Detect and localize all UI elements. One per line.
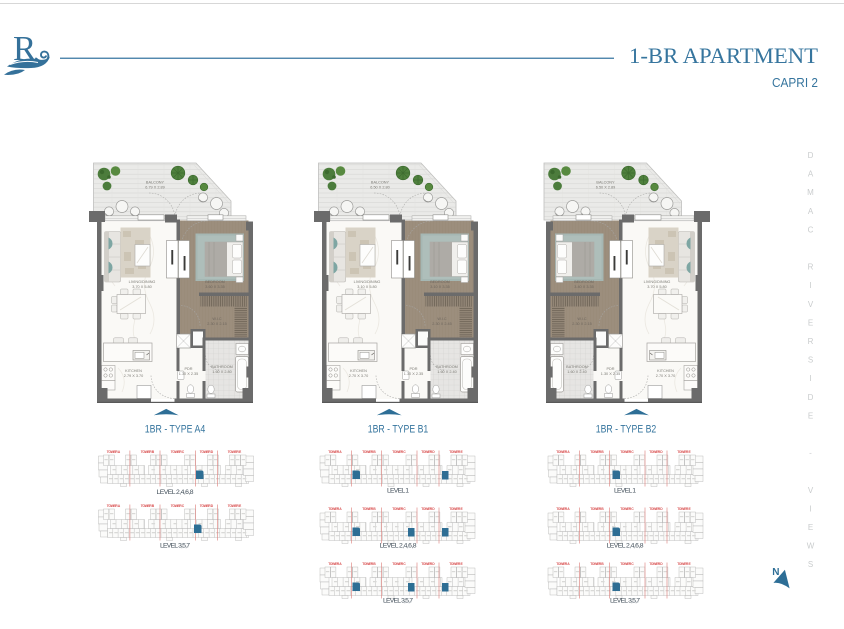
svg-text:W.I.C: W.I.C [577,317,587,321]
svg-text:6.50 X 2.80: 6.50 X 2.80 [370,186,389,190]
svg-text:PDR: PDR [606,367,614,371]
svg-text:PDR: PDR [409,367,417,371]
svg-text:LEVEL 3,5,7: LEVEL 3,5,7 [610,598,640,605]
svg-text:1.60 X 2.40: 1.60 X 2.40 [437,370,456,374]
svg-text:1.60 X 2.80: 1.60 X 2.80 [212,370,231,374]
svg-text:BEDROOM: BEDROOM [430,280,450,284]
svg-text:1.30 X 2.35: 1.30 X 2.35 [601,372,620,376]
svg-text:6.50 X 2.89: 6.50 X 2.89 [596,186,615,190]
svg-text:LEVEL 3,5,7: LEVEL 3,5,7 [160,543,190,550]
svg-text:2.70 X 3.70: 2.70 X 3.70 [349,374,368,378]
svg-text:3.40 X 3.35: 3.40 X 3.35 [574,285,593,289]
svg-text:KITCHEN: KITCHEN [125,369,142,373]
svg-text:LIVING/DINING: LIVING/DINING [644,280,671,284]
svg-text:1BR - TYPE B2: 1BR - TYPE B2 [596,424,657,436]
svg-text:6.79 X 2.89: 6.79 X 2.89 [145,186,164,190]
svg-text:BALCONY: BALCONY [146,181,165,185]
svg-text:3.10 X 5.80: 3.10 X 5.80 [357,285,376,289]
svg-text:BALCONY: BALCONY [371,181,390,185]
svg-text:2.30 X 2.15: 2.30 X 2.15 [572,322,591,326]
svg-text:LEVEL 3,5,7: LEVEL 3,5,7 [383,598,413,605]
svg-text:1.60 X 2.40: 1.60 X 2.40 [567,370,586,374]
svg-text:LEVEL 2,4,6,8: LEVEL 2,4,6,8 [607,543,644,550]
svg-text:2.70 X 3.70: 2.70 X 3.70 [656,374,675,378]
svg-text:BATHROOM: BATHROOM [436,365,458,369]
svg-text:LIVING/DINING: LIVING/DINING [354,280,381,284]
svg-text:3.70 X 5.80: 3.70 X 5.80 [132,285,151,289]
svg-text:1BR - TYPE A4: 1BR - TYPE A4 [145,424,206,436]
svg-text:2.79 X 3.70: 2.79 X 3.70 [124,374,143,378]
svg-text:3.10 X 3.35: 3.10 X 3.35 [430,285,449,289]
svg-text:BATHROOM: BATHROOM [566,365,588,369]
svg-text:BALCONY: BALCONY [596,181,615,185]
svg-text:LIVING/DINING: LIVING/DINING [129,280,156,284]
svg-text:N: N [772,567,779,578]
svg-text:BEDROOM: BEDROOM [205,280,225,284]
svg-text:KITCHEN: KITCHEN [350,369,367,373]
svg-text:1.30 X 2.35: 1.30 X 2.35 [179,372,198,376]
svg-text:LEVEL 2,4,6,8: LEVEL 2,4,6,8 [157,489,194,496]
svg-text:3.70 X 5.80: 3.70 X 5.80 [647,285,666,289]
svg-text:LEVEL 2,4,6,8: LEVEL 2,4,6,8 [380,543,417,550]
svg-text:3.60 X 3.35: 3.60 X 3.35 [205,285,224,289]
svg-text:PDR: PDR [184,367,192,371]
svg-text:CAPRI 2: CAPRI 2 [772,75,818,90]
svg-text:2.30 X 2.45: 2.30 X 2.45 [432,322,451,326]
svg-text:W.I.C: W.I.C [212,317,222,321]
svg-text:KITCHEN: KITCHEN [657,369,674,373]
svg-text:LEVEL 1: LEVEL 1 [387,488,409,495]
svg-text:W.I.C: W.I.C [437,317,447,321]
svg-text:2.30 X 2.15: 2.30 X 2.15 [207,322,226,326]
svg-text:BEDROOM: BEDROOM [574,280,594,284]
svg-text:BATHROOM: BATHROOM [211,365,233,369]
svg-text:1BR - TYPE B1: 1BR - TYPE B1 [368,424,429,436]
svg-text:LEVEL 1: LEVEL 1 [614,488,636,495]
svg-text:1-BR APARTMENT: 1-BR APARTMENT [629,43,819,68]
svg-text:1.30 X 2.35: 1.30 X 2.35 [404,372,423,376]
